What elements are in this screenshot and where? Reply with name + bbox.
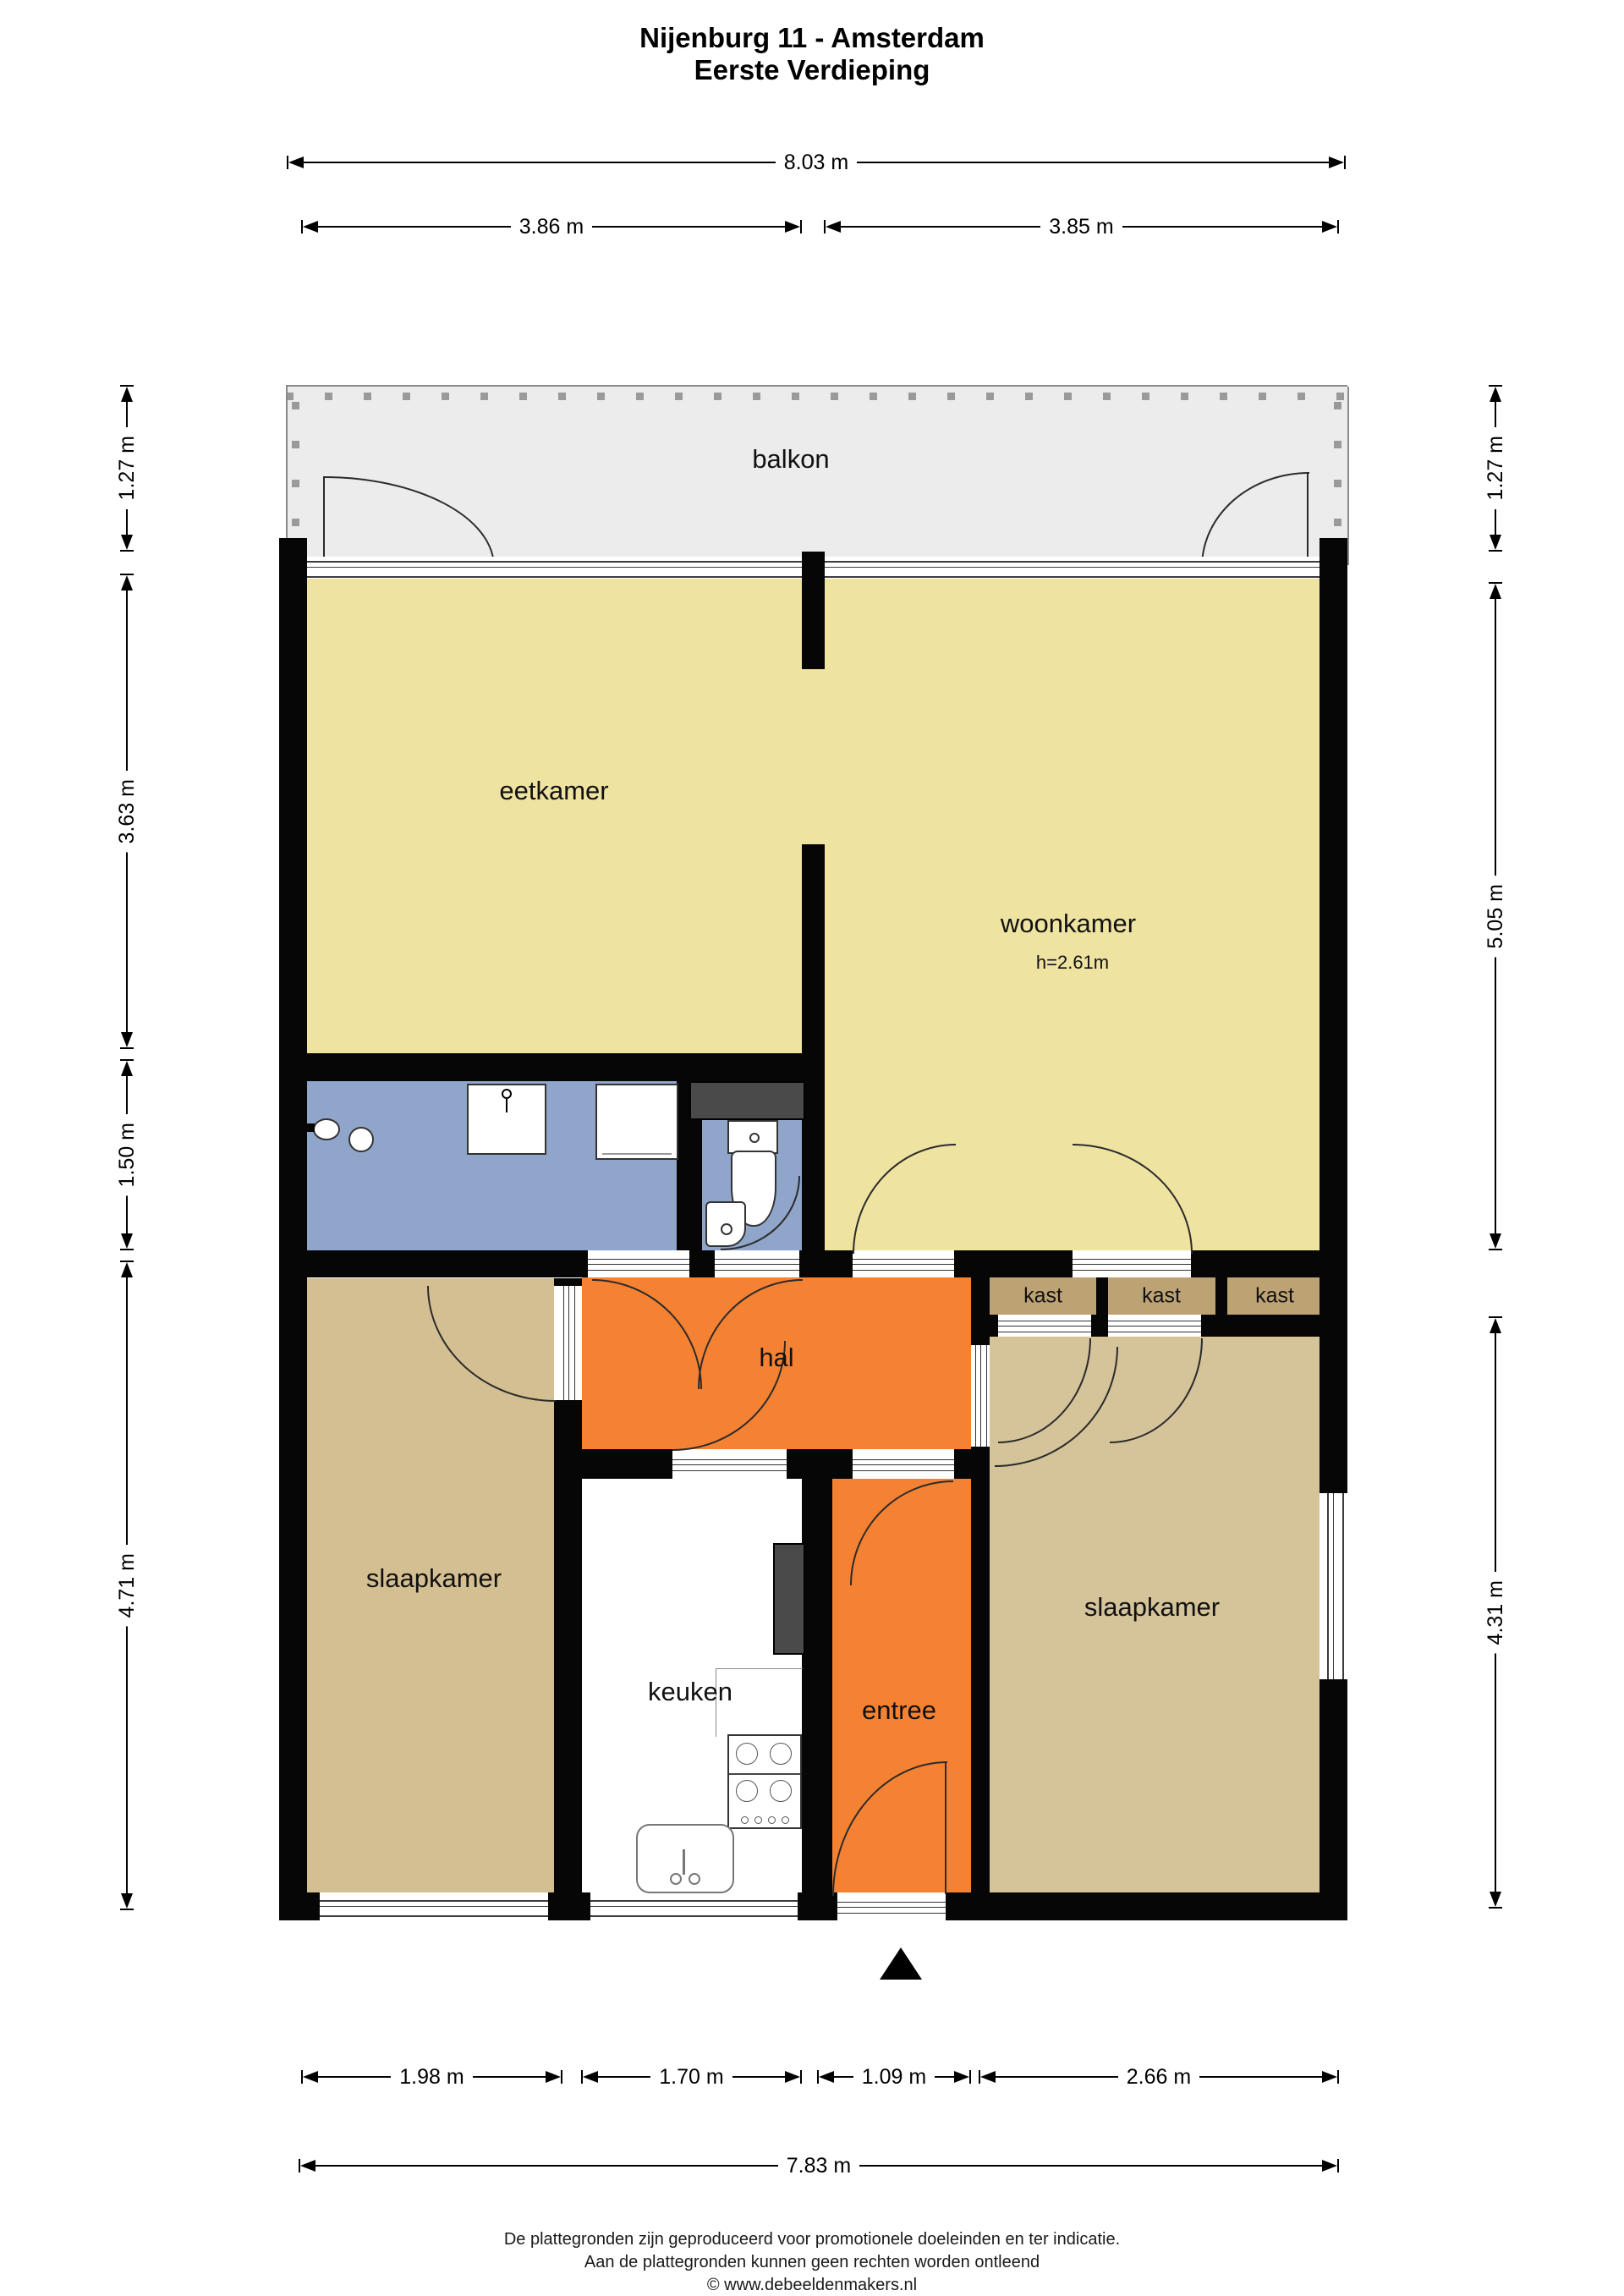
arrow-left-icon — [288, 157, 304, 168]
arrow-left-icon — [819, 2071, 834, 2083]
shower-tap-icon — [313, 1118, 340, 1140]
floorplan-page: Nijenburg 11 - Amsterdam Eerste Verdiepi… — [0, 0, 1624, 2296]
dim-bottom-4: 2.66 m — [979, 2066, 1339, 2088]
arrow-left-icon — [583, 2071, 598, 2083]
door-opening-badkamer — [588, 1252, 689, 1276]
wall-corridor — [971, 1447, 990, 1892]
arrow-right-icon — [1322, 2071, 1337, 2083]
arrow-up-icon — [121, 387, 133, 402]
arrow-up-icon — [121, 1262, 133, 1277]
dim-top-left: 3.86 m — [301, 216, 802, 238]
washbasin-icon — [467, 1084, 546, 1155]
wall-kast-bottom — [1201, 1315, 1347, 1337]
wall-stub-eetkamer-bottom — [802, 844, 825, 1250]
dim-bottom-3: 1.09 m — [817, 2066, 971, 2088]
page-title: Nijenburg 11 - Amsterdam — [0, 22, 1624, 54]
arrow-right-icon — [1322, 221, 1337, 233]
kitchen-sink-icon — [636, 1824, 734, 1893]
arrow-down-icon — [1490, 1233, 1501, 1249]
door-opening-entree — [853, 1452, 954, 1476]
entrance-arrow-icon — [880, 1947, 922, 1980]
wall-keuken-entree — [802, 1479, 832, 1892]
wall-corner-left — [279, 538, 307, 592]
wall-kast-divider — [1096, 1277, 1108, 1315]
wall-bottom — [798, 1892, 837, 1920]
room-label-keuken: keuken — [648, 1677, 732, 1707]
window-slaapkamer-rechts — [1321, 1493, 1346, 1679]
dim-label: 5.05 m — [1484, 876, 1508, 957]
wall-badkamer-top — [279, 1053, 825, 1081]
door-opening-woonkamer-1 — [853, 1252, 954, 1276]
dim-left-badkamer: 1.50 m — [116, 1059, 138, 1250]
dim-label: 3.86 m — [511, 215, 592, 239]
balcony-railing-top — [286, 385, 1347, 402]
arrow-left-icon — [300, 2160, 315, 2172]
dim-label: 3.63 m — [115, 771, 140, 852]
arrow-up-icon — [1490, 387, 1501, 402]
entrance-door-opening — [837, 1894, 946, 1919]
ceiling-height-label: h=2.61m — [1036, 952, 1109, 974]
dim-left-slaapkamer: 4.71 m — [116, 1261, 138, 1910]
room-label-slaapkamer-rechts: slaapkamer — [1084, 1592, 1220, 1623]
dim-label: 1.27 m — [115, 427, 140, 508]
dim-bottom-total: 7.83 m — [299, 2155, 1339, 2177]
arrow-down-icon — [121, 1893, 133, 1909]
arrow-right-icon — [954, 2071, 969, 2083]
room-label-kast-3: kast — [1255, 1284, 1294, 1309]
wall-kast-divider — [1215, 1277, 1227, 1315]
wall-right-lower — [1319, 1679, 1347, 1920]
arrow-left-icon — [303, 221, 318, 233]
wall-hal-bottom — [582, 1449, 672, 1479]
arrow-right-icon — [546, 2071, 561, 2083]
arrow-up-icon — [121, 575, 133, 590]
door-opening-slaapkamer-rechts — [973, 1345, 988, 1447]
dim-label: 3.85 m — [1040, 215, 1122, 239]
wall-hal-top — [279, 1250, 588, 1277]
wall-woonkamer-bottom — [1191, 1250, 1347, 1277]
page-subtitle: Eerste Verdieping — [0, 54, 1624, 86]
arrow-right-icon — [785, 2071, 800, 2083]
wall-woonkamer-bottom — [954, 1250, 1073, 1277]
opening-eetkamer-woonkamer — [802, 669, 825, 844]
arrow-left-icon — [826, 221, 841, 233]
footer-disclaimer-1: De plattegronden zijn geproduceerd voor … — [0, 2230, 1624, 2249]
corner-sink-icon — [705, 1201, 746, 1247]
dim-left-balkon: 1.27 m — [116, 385, 138, 552]
arrow-right-icon — [1329, 157, 1344, 168]
dim-right-balkon: 1.27 m — [1484, 385, 1506, 552]
dim-label: 4.71 m — [115, 1545, 140, 1626]
arrow-left-icon — [980, 2071, 996, 2083]
arrow-down-icon — [121, 1233, 133, 1249]
dim-bottom-1: 1.98 m — [301, 2066, 562, 2088]
arrow-down-icon — [1490, 535, 1501, 550]
arrow-up-icon — [1490, 584, 1501, 599]
dim-label: 2.66 m — [1118, 2065, 1199, 2090]
wall-right-upper — [1319, 555, 1347, 1493]
room-eetkamer — [307, 579, 802, 1053]
dim-bottom-2: 1.70 m — [581, 2066, 802, 2088]
door-opening-keuken — [672, 1452, 787, 1476]
room-label-eetkamer: eetkamer — [499, 776, 608, 806]
dim-label: 1.27 m — [1484, 427, 1508, 508]
room-label-kast-2: kast — [1142, 1284, 1181, 1309]
washing-machine-icon — [595, 1084, 678, 1160]
arrow-up-icon — [121, 1061, 133, 1076]
wall-stub-eetkamer-top — [802, 579, 825, 669]
wall-woonkamer-bottom — [799, 1250, 853, 1277]
dim-tick — [1344, 156, 1346, 169]
wall-kast-bottom — [990, 1315, 998, 1337]
wall-bottom — [946, 1892, 1347, 1920]
door-opening-toilet — [715, 1252, 799, 1276]
wall-corridor — [971, 1277, 990, 1345]
room-label-balkon: balkon — [752, 444, 829, 475]
dim-label: 1.50 m — [115, 1114, 140, 1195]
dim-label: 4.31 m — [1484, 1572, 1508, 1653]
toilet-tank-icon — [727, 1120, 778, 1154]
arrow-up-icon — [1490, 1318, 1501, 1333]
dim-top-total: 8.03 m — [287, 151, 1346, 173]
door-opening-kast-2 — [1108, 1316, 1201, 1336]
room-label-slaapkamer-links: slaapkamer — [366, 1563, 502, 1594]
wall-kast-bottom — [1091, 1315, 1108, 1337]
footer-disclaimer-2: Aan de plattegronden kunnen geen rechten… — [0, 2253, 1624, 2272]
arrow-left-icon — [303, 2071, 318, 2083]
room-label-kast-1: kast — [1023, 1284, 1062, 1309]
window-keuken — [590, 1894, 798, 1919]
shower-tap-stem — [303, 1123, 315, 1132]
room-label-woonkamer: woonkamer — [1001, 909, 1136, 939]
dim-label: 8.03 m — [776, 151, 857, 175]
arrow-down-icon — [121, 1032, 133, 1047]
dim-top-right: 3.85 m — [824, 216, 1339, 238]
room-label-entree: entree — [862, 1695, 936, 1726]
wall-left — [279, 555, 307, 1920]
footer-copyright: © www.debeeldenmakers.nl — [0, 2276, 1624, 2295]
door-opening-kast-1 — [998, 1316, 1091, 1336]
wall-hal-bottom — [787, 1449, 853, 1479]
dim-left-eetkamer: 3.63 m — [116, 574, 138, 1049]
wall-bottom — [279, 1892, 320, 1920]
wall-slaapkamer-links — [554, 1400, 582, 1892]
door-opening-slaapkamer-links — [556, 1286, 580, 1400]
arrow-down-icon — [121, 535, 133, 550]
arrow-right-icon — [1322, 2160, 1337, 2172]
arrow-down-icon — [1490, 1892, 1501, 1907]
door-opening-woonkamer-2 — [1073, 1252, 1191, 1276]
wall-bottom — [548, 1892, 590, 1920]
toilet-duct — [689, 1081, 805, 1120]
stove-icon — [727, 1734, 802, 1829]
drain-icon — [348, 1127, 374, 1152]
wall-hal-bottom — [954, 1449, 971, 1479]
wall-slaapkamer-links — [554, 1278, 582, 1286]
dim-label: 7.83 m — [778, 2154, 859, 2178]
keuken-duct — [773, 1543, 805, 1655]
wall-hal-top — [689, 1250, 715, 1277]
dim-right-slaapkamer: 4.31 m — [1484, 1316, 1506, 1909]
dim-label: 1.98 m — [391, 2065, 472, 2090]
room-label-hal: hal — [759, 1343, 793, 1373]
window-slaapkamer-links — [320, 1894, 548, 1919]
dim-right-woonkamer: 5.05 m — [1484, 582, 1506, 1250]
arrow-right-icon — [785, 221, 800, 233]
dim-label: 1.70 m — [650, 2065, 732, 2090]
dim-label: 1.09 m — [853, 2065, 935, 2090]
